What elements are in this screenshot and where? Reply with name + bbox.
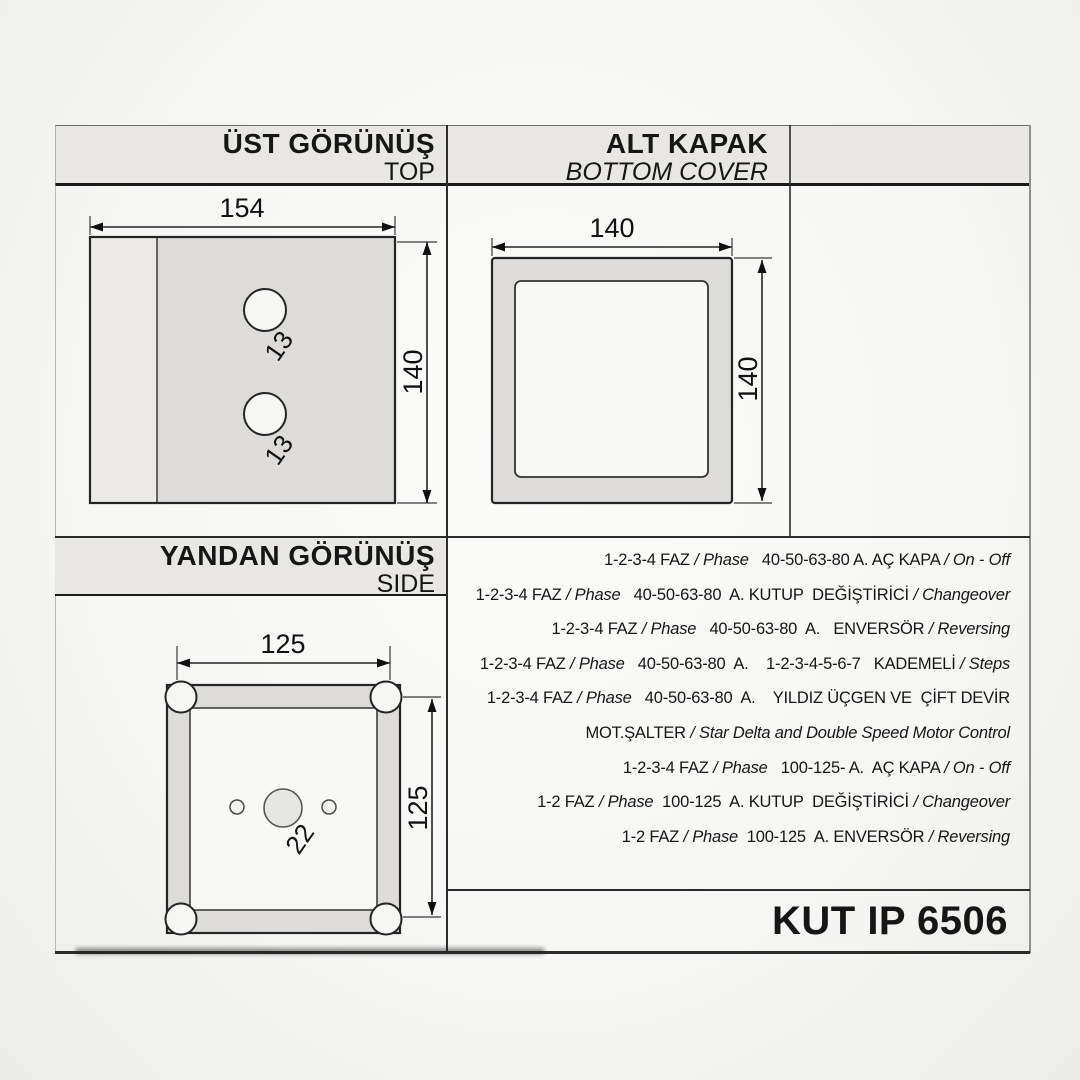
bottom-cover-drawing: 140 140	[447, 186, 790, 537]
bottom-cover-body	[492, 258, 732, 503]
top-view-title: ÜST GÖRÜNÜŞ	[57, 129, 435, 158]
product-code-cell: KUT IP 6506	[447, 891, 1030, 951]
spec-line: MOT.ŞALTER / Star Delta and Double Speed…	[447, 716, 1010, 751]
side-view-drawing: 22 125 125	[55, 596, 447, 953]
width-dimension-label: 154	[219, 193, 264, 223]
side-view-title: YANDAN GÖRÜNÜŞ	[57, 541, 435, 570]
top-view-header: ÜST GÖRÜNÜŞ TOP	[57, 126, 445, 184]
top-view-height-dimension: 140	[397, 242, 437, 503]
corner-screw	[371, 904, 402, 935]
cable-hole-top	[244, 289, 286, 331]
spec-line: 1-2-3-4 FAZ / Phase 40-50-63-80 A. 1-2-3…	[447, 647, 1010, 682]
height-dimension-label: 140	[733, 356, 763, 401]
top-view-width-dimension: 154	[90, 193, 395, 235]
spec-line: 1-2-3-4 FAZ / Phase 40-50-63-80 A. ENVER…	[447, 612, 1010, 647]
product-code: KUT IP 6506	[772, 899, 1008, 944]
bottom-cover-header: ALT KAPAK BOTTOM COVER	[447, 126, 778, 184]
height-dimension-label: 140	[398, 349, 428, 394]
bottom-cover-width-dimension: 140	[492, 213, 732, 256]
side-view-subtitle: SIDE	[57, 570, 435, 599]
top-view-subtitle: TOP	[57, 158, 435, 187]
cable-hole-bottom	[244, 393, 286, 435]
spec-line: 1-2-3-4 FAZ / Phase 100-125- A. AÇ KAPA …	[447, 751, 1010, 786]
top-view-drawing: 13 13 154 140	[55, 186, 447, 537]
corner-screw	[166, 682, 197, 713]
small-hole-left	[230, 800, 244, 814]
bottom-cover-subtitle: BOTTOM COVER	[447, 158, 768, 187]
side-view-height-dimension: 125	[403, 697, 441, 917]
height-dimension-label: 125	[403, 785, 433, 830]
spec-line: 1-2-3-4 FAZ / Phase 40-50-63-80 A. YILDI…	[447, 681, 1010, 716]
spec-line: 1-2-3-4 FAZ / Phase 40-50-63-80 A. KUTUP…	[447, 578, 1010, 613]
corner-screw	[166, 904, 197, 935]
spec-list: 1-2-3-4 FAZ / Phase 40-50-63-80 A. AÇ KA…	[447, 543, 1030, 863]
side-view-width-dimension: 125	[177, 629, 390, 680]
side-view-body: 22	[166, 682, 402, 935]
corner-screw	[371, 682, 402, 713]
width-dimension-label: 125	[260, 629, 305, 659]
side-view-header: YANDAN GÖRÜNÜŞ SIDE	[57, 538, 445, 594]
bottom-cover-title: ALT KAPAK	[447, 129, 768, 158]
bottom-cover-height-dimension: 140	[733, 258, 772, 503]
spec-line: 1-2 FAZ / Phase 100-125 A. ENVERSÖR / Re…	[447, 820, 1010, 855]
width-dimension-label: 140	[589, 213, 634, 243]
spec-line: 1-2 FAZ / Phase 100-125 A. KUTUP DEĞİŞTİ…	[447, 785, 1010, 820]
top-view-body: 13 13	[90, 237, 395, 503]
small-hole-right	[322, 800, 336, 814]
spec-line: 1-2-3-4 FAZ / Phase 40-50-63-80 A. AÇ KA…	[447, 543, 1010, 578]
